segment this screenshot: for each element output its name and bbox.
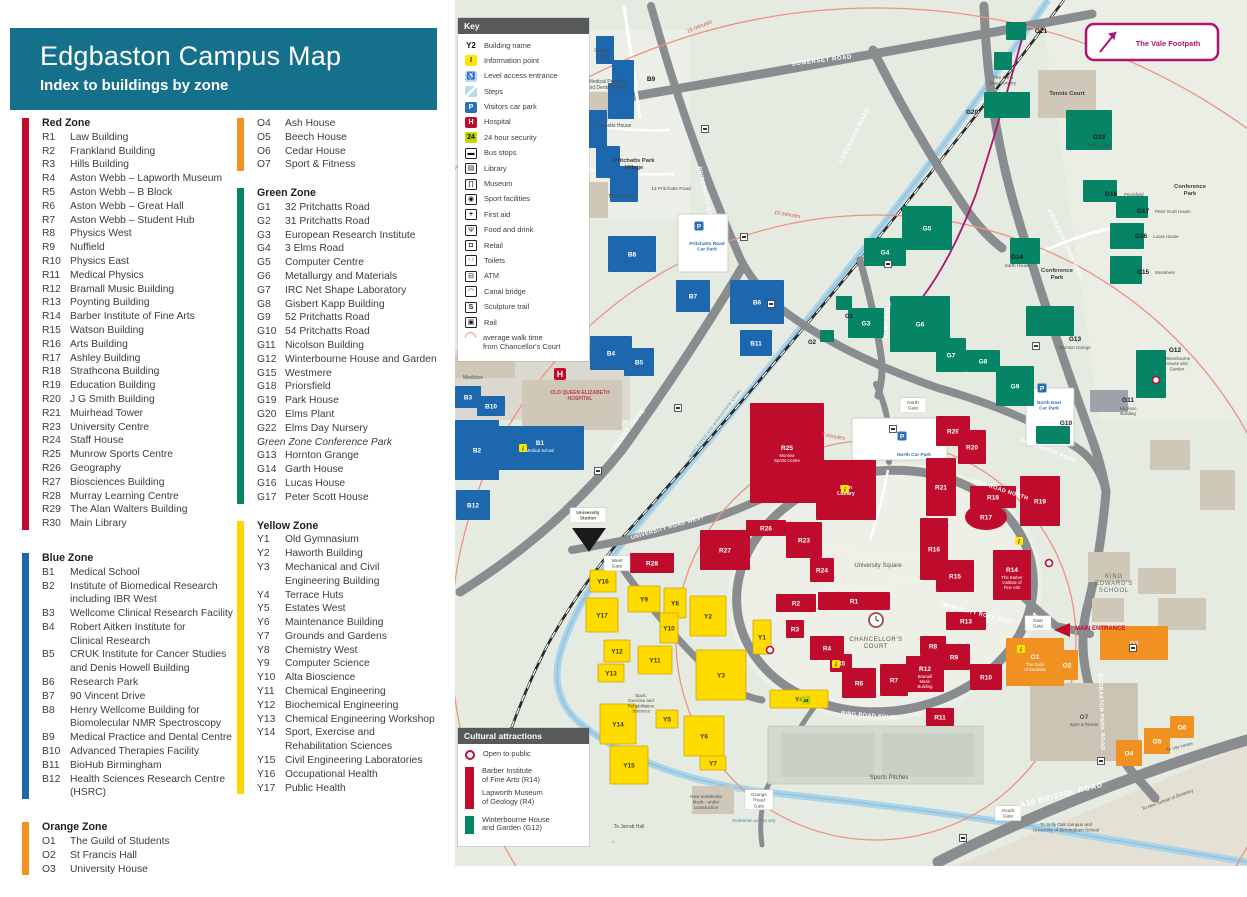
zone-item-B9: B9Medical Practice and Dental Centre xyxy=(42,731,235,745)
map-building xyxy=(1200,470,1235,510)
building-name: Aston Webb – B Block xyxy=(70,186,172,200)
building-code-label: Y15 xyxy=(623,762,635,769)
building-code-label: Y11 xyxy=(649,657,661,664)
key-label: Rail xyxy=(484,317,497,327)
red-zone-attractions: Barber Institute of Fine Arts (R14)Lapwo… xyxy=(465,767,584,809)
car-park-icon: P xyxy=(695,222,704,231)
building-code: R14 xyxy=(42,310,70,324)
zone-color-bar xyxy=(22,553,29,799)
building-code-label: Y1 xyxy=(758,634,766,641)
zone-section-orange: Orange ZoneO1The Guild of StudentsO2St F… xyxy=(22,821,235,876)
building-name: Watson Building xyxy=(70,324,144,338)
building-code-label: R4 xyxy=(823,645,832,652)
map-building xyxy=(1026,306,1074,336)
building-name: Robert Aitken Institute for Clinical Res… xyxy=(70,621,186,649)
green-zone-attractions: Winterbourne House and Garden (G12) xyxy=(465,816,584,834)
zone-item-R14: R14Barber Institute of Fine Arts xyxy=(42,310,235,324)
key-label: Information point xyxy=(484,55,539,65)
key-label: average walk time from Chancellor's Cour… xyxy=(483,332,560,351)
building-code: B7 xyxy=(42,690,70,704)
map-building xyxy=(1036,426,1070,444)
building-code: Y9 xyxy=(257,657,285,671)
map-label: The Spinney xyxy=(608,194,637,200)
map-building xyxy=(1158,598,1206,630)
building-name: Medical School xyxy=(70,566,140,580)
zone-item-G12: G12Winterbourne House and Garden xyxy=(257,353,453,367)
zone-item-R15: R15Watson Building xyxy=(42,324,235,338)
building-code: Y7 xyxy=(257,630,285,644)
building-code: Y15 xyxy=(257,754,285,768)
zone-item-R24: R24Staff House xyxy=(42,434,235,448)
building-code: G18 xyxy=(257,380,285,394)
key-label: Sport facilities xyxy=(484,194,530,204)
map-label: G21 xyxy=(1035,28,1048,35)
building-name: Hills Building xyxy=(70,158,129,172)
map-label: MAIN ENTRANCE xyxy=(1075,626,1125,632)
building-code: R11 xyxy=(42,269,70,283)
bus-stop-icon xyxy=(960,835,967,842)
map-building xyxy=(782,733,874,777)
cultural-attractions-panel: Cultural attractions Open to publicBarbe… xyxy=(458,728,589,846)
map-building xyxy=(522,380,622,430)
building-code: R8 xyxy=(42,227,70,241)
svg-text:P: P xyxy=(900,433,905,440)
zone-item-B10: B10Advanced Therapies Facility xyxy=(42,745,235,759)
car-park-icon: P xyxy=(1038,384,1047,393)
building-code: R27 xyxy=(42,476,70,490)
building-code-label: R13 xyxy=(960,618,972,625)
map-label: Westmere xyxy=(1155,270,1175,275)
building-code: B1 xyxy=(42,566,70,580)
building-name: Garth House xyxy=(285,463,343,477)
map-building xyxy=(820,330,834,342)
building-code: B9 xyxy=(42,731,70,745)
zone-item-B7: B790 Vincent Drive xyxy=(42,690,235,704)
information-point-icon: i xyxy=(841,485,849,493)
zone-item-B3: B3Wellcome Clinical Research Facility xyxy=(42,607,235,621)
key-panel: Key Y2Building nameiInformation point♿Le… xyxy=(458,18,589,361)
building-name: Main Library xyxy=(70,517,127,531)
building-code: R23 xyxy=(42,421,70,435)
key-row: 2424 hour security xyxy=(465,132,584,143)
building-name: Research Park xyxy=(70,676,138,690)
zone-item-R26: R26Geography xyxy=(42,462,235,476)
zone-item-R9: R9Nuffield xyxy=(42,241,235,255)
building-code: Y17 xyxy=(257,782,285,796)
zone-item-Y15: Y15Civil Engineering Laboratories xyxy=(257,754,453,768)
map-building xyxy=(882,733,974,777)
building-name: Biochemical Engineering xyxy=(285,699,398,713)
building-name: Hornton Grange xyxy=(285,449,359,463)
key-row: ♀♂Toilets xyxy=(465,255,584,266)
building-code-label: R23 xyxy=(798,537,810,544)
building-code: R17 xyxy=(42,352,70,366)
zone-item-Y3: Y3Mechanical and Civil Engineering Build… xyxy=(257,561,453,589)
map-label: G18 xyxy=(1105,191,1118,198)
zone-item-R18: R18Strathcona Building xyxy=(42,365,235,379)
building-code: B6 xyxy=(42,676,70,690)
building-name: Medical Practice and Dental Centre xyxy=(70,731,232,745)
zone-item-B4: B4Robert Aitken Institute for Clinical R… xyxy=(42,621,235,649)
building-code-label: G7 xyxy=(947,352,956,359)
cultural-label: Lapworth Museum of Geology (R4) xyxy=(482,789,543,806)
key-row: ▬Bus stops xyxy=(465,148,584,159)
zone-item-Y5: Y5Estates West xyxy=(257,602,453,616)
building-code-label: R11 xyxy=(934,714,946,721)
building-name: Aston Webb – Student Hub xyxy=(70,214,195,228)
building-name: Poynting Building xyxy=(70,296,150,310)
building-name: Old Gymnasium xyxy=(285,533,359,547)
building-code-label: R20 xyxy=(966,444,978,451)
building-code: R30 xyxy=(42,517,70,531)
zone-item-R11: R11Medical Physics xyxy=(42,269,235,283)
map-label: G16 xyxy=(1135,233,1148,240)
building-sublabel: Sport & Fitness xyxy=(1070,722,1099,727)
building-code: R28 xyxy=(42,490,70,504)
zone-item-R4: R4Aston Webb – Lapworth Museum xyxy=(42,172,235,186)
building-code: O4 xyxy=(257,117,285,131)
key-label: Steps xyxy=(484,86,503,96)
zone-item-R7: R7Aston Webb – Student Hub xyxy=(42,214,235,228)
zone-item-O5: O5Beech House xyxy=(257,131,453,145)
zone-item-G22: G22Elms Day Nursery xyxy=(257,422,453,436)
map-label: The ElmsDay Nursery xyxy=(990,75,1017,87)
bus-stop-icon xyxy=(675,405,682,412)
building-name: Priorsfield xyxy=(285,380,331,394)
building-sublabel: Medical School xyxy=(526,448,554,453)
building-name: Muirhead Tower xyxy=(70,407,143,421)
zone-item-R19: R19Education Building xyxy=(42,379,235,393)
zone-item-Y1: Y1Old Gymnasium xyxy=(257,533,453,547)
building-code-label: Y5 xyxy=(663,716,671,723)
building-name: Physics West xyxy=(70,227,132,241)
building-code-label: R7 xyxy=(890,677,899,684)
map-title-block: Edgbaston Campus Map Index to buildings … xyxy=(10,28,437,110)
zone-item-R5: R5Aston Webb – B Block xyxy=(42,186,235,200)
zone-item-R2: R2Frankland Building xyxy=(42,145,235,159)
zone-heading: Green Zone xyxy=(257,187,453,201)
key-row: iInformation point xyxy=(465,55,584,66)
building-code-label: B1 xyxy=(536,440,545,447)
map-label: G20 xyxy=(966,109,979,116)
building-name: Strathcona Building xyxy=(70,365,159,379)
building-name: Bramall Music Building xyxy=(70,283,174,297)
zone-color-bar xyxy=(237,188,244,503)
key-row: +First aid xyxy=(465,209,584,220)
map-building xyxy=(1092,598,1124,622)
building-name: Nuffield xyxy=(70,241,105,255)
zone-section-red: Red ZoneR1Law BuildingR2Frankland Buildi… xyxy=(22,117,235,531)
building-name: Terrace Huts xyxy=(285,589,343,603)
building-name: Education Building xyxy=(70,379,155,393)
zone-section-green: Green ZoneG132 Pritchatts RoadG231 Pritc… xyxy=(237,187,453,504)
building-code: B3 xyxy=(42,607,70,621)
zone-item-B5: B5CRUK Institute for Cancer Studies and … xyxy=(42,648,235,676)
cultural-label: Barber Institute of Fine Arts (R14) xyxy=(482,767,543,784)
zone-heading: Yellow Zone xyxy=(257,520,453,534)
zone-item-B12: B12Health Sciences Research Centre (HSRC… xyxy=(42,773,235,801)
zone-item-G3: G3European Research Institute xyxy=(257,229,453,243)
key-row: HHospital xyxy=(465,117,584,128)
building-code: Y4 xyxy=(257,589,285,603)
building-code-label: Y10 xyxy=(663,625,675,632)
building-name: Nicolson Building xyxy=(285,339,364,353)
zone-item-G16: G16Lucas House xyxy=(257,477,453,491)
building-code-label: B2 xyxy=(473,447,482,454)
zone-item-Y13: Y13Chemical Engineering Workshop xyxy=(257,713,453,727)
open-to-public-icon xyxy=(465,750,475,760)
building-code: Y10 xyxy=(257,671,285,685)
zone-item-G13: G13Hornton Grange xyxy=(257,449,453,463)
building-code: Y3 xyxy=(257,561,285,589)
open-to-public-icon xyxy=(767,647,774,654)
building-code-label: G4 xyxy=(881,249,890,256)
building-code-label: O7 xyxy=(1080,714,1089,721)
cultural-label: Open to public xyxy=(483,750,531,759)
building-code-label: R9 xyxy=(950,654,959,661)
building-code: B10 xyxy=(42,745,70,759)
building-code-label: R29 xyxy=(947,428,959,435)
atm-icon: ⊟ xyxy=(465,271,477,282)
building-code: G16 xyxy=(257,477,285,491)
building-code-label: B8 xyxy=(628,251,637,258)
building-code-label: O4 xyxy=(1125,750,1134,757)
building-code-label: R3 xyxy=(791,626,800,633)
building-code-label: B3 xyxy=(464,394,473,401)
information-point-icon: i xyxy=(519,444,527,452)
key-row: ΨFood and drink xyxy=(465,225,584,236)
building-name: Elms Plant xyxy=(285,408,334,422)
building-code-label: O6 xyxy=(1178,724,1187,731)
building-code-label: R1 xyxy=(850,598,859,605)
building-name: St Francis Hall xyxy=(70,849,137,863)
zone-item-R13: R13Poynting Building xyxy=(42,296,235,310)
building-code: R6 xyxy=(42,200,70,214)
zone-item-O3: O3University House xyxy=(42,863,235,877)
map-label: Peter Scott House xyxy=(1155,209,1191,214)
bus-stop-icon xyxy=(768,301,775,308)
building-name: Henry Wellcome Building for Biomolecular… xyxy=(70,704,221,732)
map-label: G17 xyxy=(1137,208,1150,215)
index-column-2: O4Ash HouseO5Beech HouseO6Cedar HouseO7S… xyxy=(237,117,453,810)
bus-stop-icon xyxy=(741,234,748,241)
building-code: B5 xyxy=(42,648,70,676)
zone-color-bar xyxy=(237,118,244,171)
map-building xyxy=(1150,440,1190,470)
map-label: G10 xyxy=(1060,420,1073,427)
key-label: Visitors car park xyxy=(484,102,537,112)
building-code: G11 xyxy=(257,339,285,353)
building-name: Grounds and Gardens xyxy=(285,630,387,644)
map-label: SouthGate xyxy=(1002,808,1015,820)
building-code: R12 xyxy=(42,283,70,297)
key-label: Library xyxy=(484,163,507,173)
library-icon: ▤ xyxy=(465,163,477,174)
map-building xyxy=(1136,350,1166,398)
zone-item-R29: R29The Alan Walters Building xyxy=(42,503,235,517)
building-name: Estates West xyxy=(285,602,345,616)
building-name: Green Zone Conference Park xyxy=(257,436,392,450)
building-name: Civil Engineering Laboratories xyxy=(285,754,422,768)
zone-item-O1: O1The Guild of Students xyxy=(42,835,235,849)
page: { "title":{"heading":"Edgbaston Campus M… xyxy=(0,0,1247,873)
building-name: Physics East xyxy=(70,255,129,269)
building-code: G4 xyxy=(257,242,285,256)
building-name: Chemistry West xyxy=(285,644,357,658)
building-name: 3 Elms Road xyxy=(285,242,344,256)
map-label: 13 Pritchatts Road xyxy=(651,186,691,192)
building-code: R15 xyxy=(42,324,70,338)
map-label: The Vale Footpath xyxy=(1136,39,1201,48)
information-point-icon: i xyxy=(1015,537,1023,545)
building-code: R4 xyxy=(42,172,70,186)
building-name: Ash House xyxy=(285,117,335,131)
building-code: O3 xyxy=(42,863,70,877)
building-code: R2 xyxy=(42,145,70,159)
building-code-label: B6 xyxy=(753,299,762,306)
building-name: 90 Vincent Drive xyxy=(70,690,145,704)
zone-item-Y11: Y11Chemical Engineering xyxy=(257,685,453,699)
building-name: 31 Pritchatts Road xyxy=(285,215,370,229)
building-name: Beech House xyxy=(285,131,347,145)
building-name: Aston Webb – Great Hall xyxy=(70,200,184,214)
svg-text:P: P xyxy=(1040,385,1045,392)
24-hour-security-icon: 24 xyxy=(802,696,811,705)
building-code: B12 xyxy=(42,773,70,801)
map-label: G14 xyxy=(1011,254,1024,261)
map-label: North Car Park xyxy=(897,452,931,458)
building-code: R16 xyxy=(42,338,70,352)
building-name: Lucas House xyxy=(285,477,345,491)
key-label: Sculpture trail xyxy=(484,302,529,312)
building-name: Mechanical and Civil Engineering Buildin… xyxy=(285,561,379,589)
food-and-drink-icon: Ψ xyxy=(465,225,477,236)
building-code-label: R2 xyxy=(792,600,801,607)
map-label: EastGate xyxy=(1033,618,1044,630)
zone-item-Y14: Y14Sport, Exercise and Rehabilitation Sc… xyxy=(257,726,453,754)
key-label: Food and drink xyxy=(484,225,533,235)
building-code: Y16 xyxy=(257,768,285,782)
building-code: G10 xyxy=(257,325,285,339)
map-building xyxy=(994,52,1012,70)
building-name: CRUK Institute for Cancer Studies and De… xyxy=(70,648,226,676)
building-code: R10 xyxy=(42,255,70,269)
zone-item-R10: R10Physics East xyxy=(42,255,235,269)
building-code: R5 xyxy=(42,186,70,200)
building-code: R1 xyxy=(42,131,70,145)
building-name: Frankland Building xyxy=(70,145,155,159)
zone-item-R25: R25Munrow Sports Centre xyxy=(42,448,235,462)
building-code-label: R10 xyxy=(980,674,992,681)
hospital-icon: H xyxy=(465,117,477,128)
building-name: Occupational Health xyxy=(285,768,378,782)
building-code: G1 xyxy=(257,201,285,215)
building-code-label: R24 xyxy=(816,567,828,574)
building-name: Wellcome Clinical Research Facility xyxy=(70,607,233,621)
building-name: Advanced Therapies Facility xyxy=(70,745,199,759)
zone-item-B6: B6Research Park xyxy=(42,676,235,690)
building-code-label: G3 xyxy=(862,320,871,327)
zone-section-yellow: Yellow ZoneY1Old GymnasiumY2Haworth Buil… xyxy=(237,520,453,796)
building-code: R29 xyxy=(42,503,70,517)
zone-item-G17: G17Peter Scott House xyxy=(257,491,453,505)
building-code-label: Y13 xyxy=(605,670,617,677)
building-name: Metallurgy and Materials xyxy=(285,270,397,284)
building-code-label: R21 xyxy=(935,484,947,491)
building-code: R9 xyxy=(42,241,70,255)
building-code-label: Y7 xyxy=(709,760,717,767)
building-name: J G Smith Building xyxy=(70,393,155,407)
building-code: Y13 xyxy=(257,713,285,727)
building-code: B11 xyxy=(42,759,70,773)
building-code: G14 xyxy=(257,463,285,477)
map-label: To Selly Oak campus andUniversity of Bir… xyxy=(1033,822,1099,832)
map-label: Hornton Grange xyxy=(1059,345,1091,350)
map-label: OakleyCourt xyxy=(594,48,610,60)
key-label: Museum xyxy=(484,179,512,189)
zone-swatch xyxy=(465,767,474,809)
zone-item-R3: R3Hills Building xyxy=(42,158,235,172)
open-to-public: Open to public xyxy=(465,750,584,760)
bus-stop-icon xyxy=(702,126,709,133)
building-code-label: Y12 xyxy=(611,648,623,655)
building-code: R20 xyxy=(42,393,70,407)
building-code-label: R26 xyxy=(760,525,772,532)
key-row: average walk time from Chancellor's Cour… xyxy=(465,332,584,351)
zone-swatch xyxy=(465,816,474,834)
zone-item-R21: R21Muirhead Tower xyxy=(42,407,235,421)
map-label: B9 xyxy=(647,76,656,83)
map-label: G13 xyxy=(1069,336,1082,343)
building-name: Institute of Biomedical Research includi… xyxy=(70,580,218,608)
zone-item-R16: R16Arts Building xyxy=(42,338,235,352)
building-code-label: B10 xyxy=(485,403,497,410)
key-label: ATM xyxy=(484,271,499,281)
zone-item-Y9: Y9Computer Science xyxy=(257,657,453,671)
zone-item-G19: G19Park House xyxy=(257,394,453,408)
building-code-label: R27 xyxy=(719,547,731,554)
building-code-label: R16 xyxy=(928,546,940,553)
building-name: Haworth Building xyxy=(285,547,363,561)
building-code: Y6 xyxy=(257,616,285,630)
map-label: To Jarratt Hall xyxy=(614,824,645,830)
building-code-label: Y2 xyxy=(704,613,712,620)
zone-item-G15: G15Westmere xyxy=(257,367,453,381)
building-code: Y1 xyxy=(257,533,285,547)
page-subtitle: Index to buildings by zone xyxy=(40,77,437,94)
zone-section-orange-continued: O4Ash HouseO5Beech HouseO6Cedar HouseO7S… xyxy=(237,117,453,172)
key-label: Canal bridge xyxy=(484,286,526,296)
index-column-1: Red ZoneR1Law BuildingR2Frankland Buildi… xyxy=(22,117,235,897)
building-name: Peter Scott House xyxy=(285,491,369,505)
zone-color-bar xyxy=(237,521,244,795)
key-row: ∏Museum xyxy=(465,179,584,190)
building-code-label: O2 xyxy=(1063,662,1072,669)
building-name: Munrow Sports Centre xyxy=(70,448,173,462)
map-label: G15 xyxy=(1137,269,1150,276)
building-name: Aston Webb – Lapworth Museum xyxy=(70,172,222,186)
bus-stop-icon xyxy=(1130,645,1137,652)
map-label: Pedestrian access only xyxy=(732,818,776,823)
building-code: R3 xyxy=(42,158,70,172)
building-code-label: G9 xyxy=(1011,383,1020,390)
building-code-label: Y3 xyxy=(717,672,725,679)
building-name: Arts Building xyxy=(70,338,128,352)
map-label: G12 xyxy=(1169,347,1182,354)
building-name: Biosciences Building xyxy=(70,476,164,490)
map-label: WestGate xyxy=(612,558,624,570)
zone-heading: Blue Zone xyxy=(42,552,235,566)
